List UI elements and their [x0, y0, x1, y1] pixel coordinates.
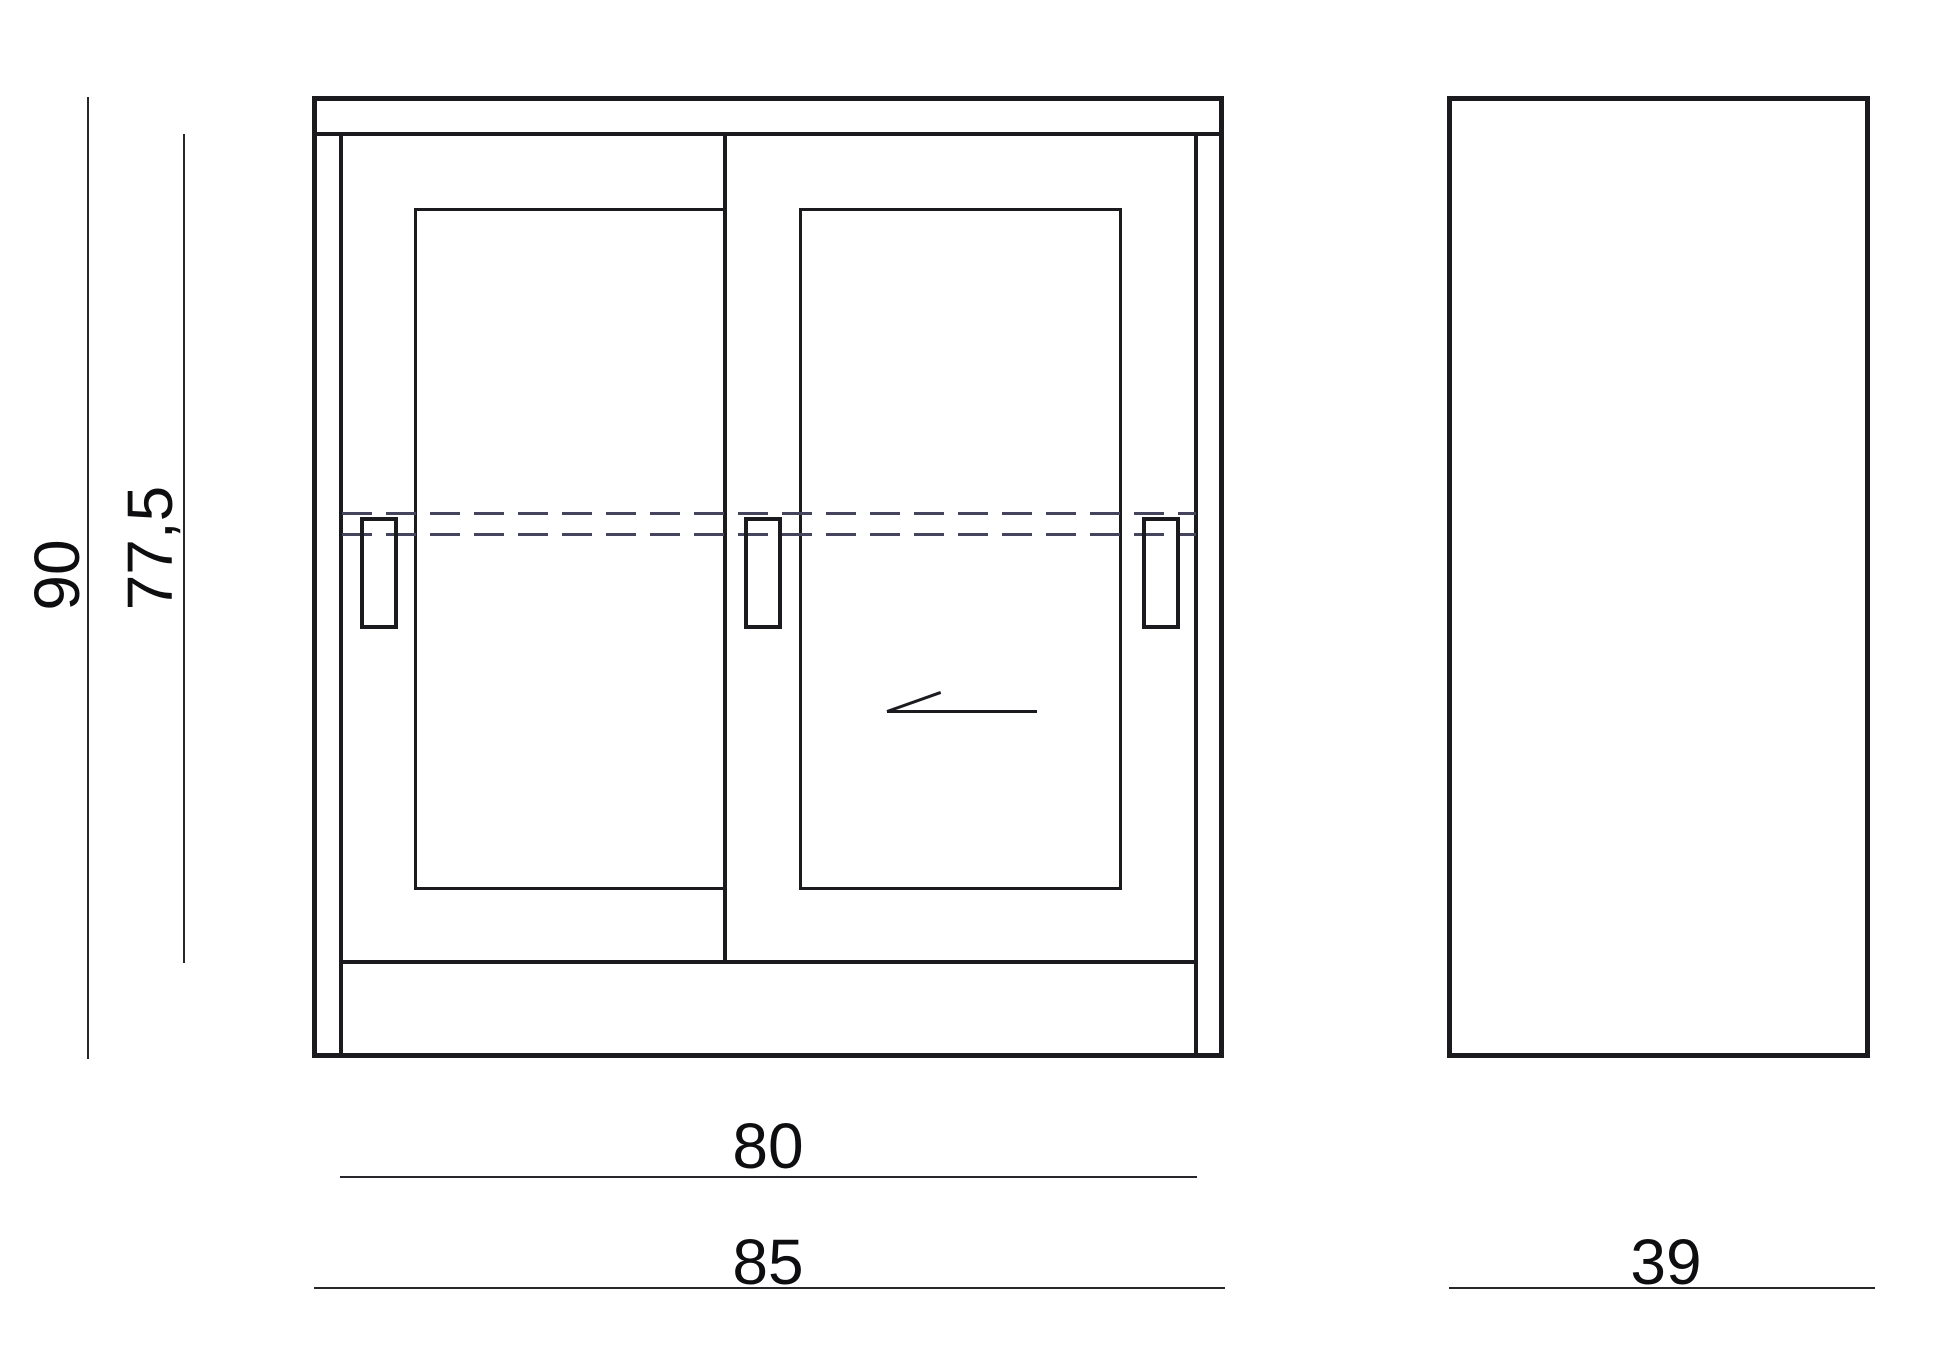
shelf-hidden-line-upper [342, 512, 1196, 515]
technical-drawing-canvas: 90 77,5 80 85 39 [0, 0, 1946, 1345]
right-stile-line [1194, 134, 1198, 1058]
top-rail-line [314, 132, 1222, 136]
left-stile-line [339, 134, 343, 1058]
dim-total-width-label: 85 [732, 1230, 803, 1294]
right-door-handle [1142, 517, 1180, 629]
right-door-panel [799, 208, 1122, 890]
arrow-shaft [887, 710, 1037, 713]
dim-door-height-label: 77,5 [118, 486, 182, 611]
door-bottom-line [341, 960, 1198, 964]
dim-opening-width-label: 80 [732, 1114, 803, 1178]
left-door-handle [360, 517, 398, 629]
dim-total-height-label: 90 [25, 539, 89, 610]
right-door-edge-line [723, 134, 727, 962]
side-view-outline [1447, 96, 1870, 1058]
middle-door-handle [744, 517, 782, 629]
left-door-panel [414, 208, 727, 890]
dim-depth-label: 39 [1630, 1230, 1701, 1294]
